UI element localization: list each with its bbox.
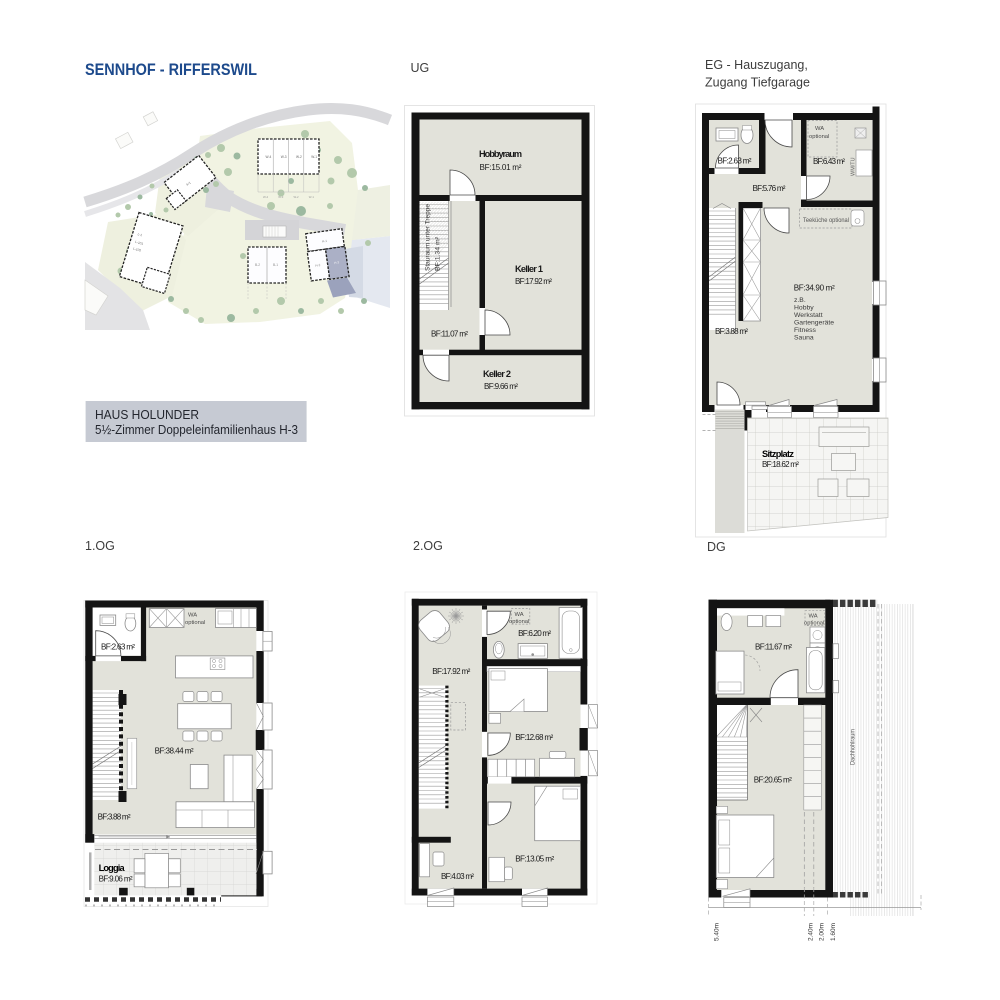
svg-text:H-2: H-2: [315, 263, 321, 268]
svg-text:BF:20.65 m²: BF:20.65 m²: [754, 776, 792, 785]
svg-text:BF:13.05 m²: BF:13.05 m²: [515, 855, 554, 864]
svg-text:Gartengeräte: Gartengeräte: [794, 320, 834, 327]
svg-text:2.OG: 2.OG: [413, 539, 443, 553]
svg-text:BF:34.90 m²: BF:34.90 m²: [794, 284, 835, 293]
svg-text:BF:11.67 m²: BF:11.67 m²: [755, 643, 792, 652]
svg-text:BF:6.20 m²: BF:6.20 m²: [518, 629, 551, 638]
svg-text:BF:3.88 m²: BF:3.88 m²: [715, 327, 748, 336]
svg-text:W-3: W-3: [281, 155, 287, 159]
svg-text:Hobby: Hobby: [794, 305, 814, 312]
svg-text:BF:4.03 m²: BF:4.03 m²: [441, 872, 474, 881]
svg-text:WA: WA: [809, 614, 818, 620]
svg-text:BF:12.68 m²: BF:12.68 m²: [515, 733, 553, 742]
svg-text:Stauraum unter Treppe: Stauraum unter Treppe: [425, 204, 432, 271]
svg-text:optional: optional: [185, 620, 205, 626]
svg-text:BF:2.63 m²: BF:2.63 m²: [101, 643, 135, 652]
svg-text:Sitzplatz: Sitzplatz: [762, 449, 794, 459]
svg-text:BF:5.76 m²: BF:5.76 m²: [753, 184, 786, 193]
svg-text:BF:3.88 m²: BF:3.88 m²: [98, 813, 131, 822]
svg-text:1.60m: 1.60m: [830, 923, 837, 941]
svg-text:BF:18.62 m²: BF:18.62 m²: [762, 460, 799, 469]
svg-text:WA: WA: [188, 613, 197, 619]
svg-text:H-3: H-3: [334, 260, 340, 265]
svg-text:Sauna: Sauna: [794, 335, 814, 342]
svg-text:W-4: W-4: [266, 155, 272, 159]
svg-text:DG: DG: [707, 540, 726, 554]
svg-text:EG - Hauszugang,: EG - Hauszugang,: [705, 58, 808, 72]
svg-text:SENNHOF - RIFFERSWIL: SENNHOF - RIFFERSWIL: [85, 61, 257, 79]
svg-text:Hobbyraum: Hobbyraum: [479, 149, 522, 159]
svg-text:BF:17.92 m²: BF:17.92 m²: [432, 667, 470, 676]
svg-text:B-1: B-1: [273, 263, 278, 267]
svg-text:W-4: W-4: [263, 195, 269, 199]
svg-text:optional: optional: [509, 619, 529, 625]
svg-text:Loggia: Loggia: [99, 863, 126, 873]
svg-text:B-2: B-2: [255, 263, 260, 267]
svg-text:Teeküche optional: Teeküche optional: [803, 217, 849, 224]
svg-text:optional: optional: [809, 134, 829, 140]
svg-text:z.B.: z.B.: [794, 297, 806, 304]
svg-text:UG: UG: [411, 61, 430, 75]
svg-text:Fitness: Fitness: [794, 327, 817, 334]
svg-text:BF:11.07 m²: BF:11.07 m²: [431, 330, 468, 339]
svg-text:WA: WA: [515, 612, 524, 618]
svg-text:1.OG: 1.OG: [85, 539, 115, 553]
svg-text:W-1: W-1: [311, 155, 317, 159]
svg-text:BF:38.44 m²: BF:38.44 m²: [155, 747, 194, 756]
svg-text:optional: optional: [804, 621, 824, 627]
svg-text:5½-Zimmer Doppeleinfamilienhau: 5½-Zimmer Doppeleinfamilienhaus H-3: [95, 423, 298, 437]
svg-text:Zugang Tiefgarage: Zugang Tiefgarage: [705, 76, 810, 90]
svg-text:BF:1.34 m²: BF:1.34 m²: [435, 236, 442, 271]
svg-text:W-1: W-1: [309, 195, 315, 199]
svg-text:Werkstatt: Werkstatt: [794, 312, 823, 319]
svg-text:Dachhohlraum: Dachhohlraum: [850, 729, 857, 765]
svg-text:5.40m: 5.40m: [714, 923, 721, 941]
svg-text:Keller 2: Keller 2: [483, 369, 511, 379]
svg-text:BF:9.66 m²: BF:9.66 m²: [484, 382, 518, 391]
svg-text:Keller 1: Keller 1: [515, 264, 543, 274]
svg-text:BF:6.43 m²: BF:6.43 m²: [813, 157, 845, 166]
svg-text:BF:15.01 m²: BF:15.01 m²: [480, 163, 522, 172]
svg-text:BF:17.92 m²: BF:17.92 m²: [515, 277, 552, 286]
svg-text:H-1: H-1: [322, 239, 328, 244]
svg-text:HAUS HOLUNDER: HAUS HOLUNDER: [95, 408, 199, 422]
svg-text:BF:2.63 m²: BF:2.63 m²: [718, 157, 752, 166]
svg-text:W-3: W-3: [278, 195, 284, 199]
svg-text:2.40m: 2.40m: [808, 923, 815, 941]
svg-text:WM/TU: WM/TU: [851, 157, 857, 176]
svg-text:WA: WA: [815, 126, 824, 132]
svg-text:2.00m: 2.00m: [819, 923, 826, 941]
svg-text:BF:9.06 m²: BF:9.06 m²: [99, 875, 133, 884]
svg-text:W-2: W-2: [294, 195, 300, 199]
svg-text:W-2: W-2: [296, 155, 302, 159]
